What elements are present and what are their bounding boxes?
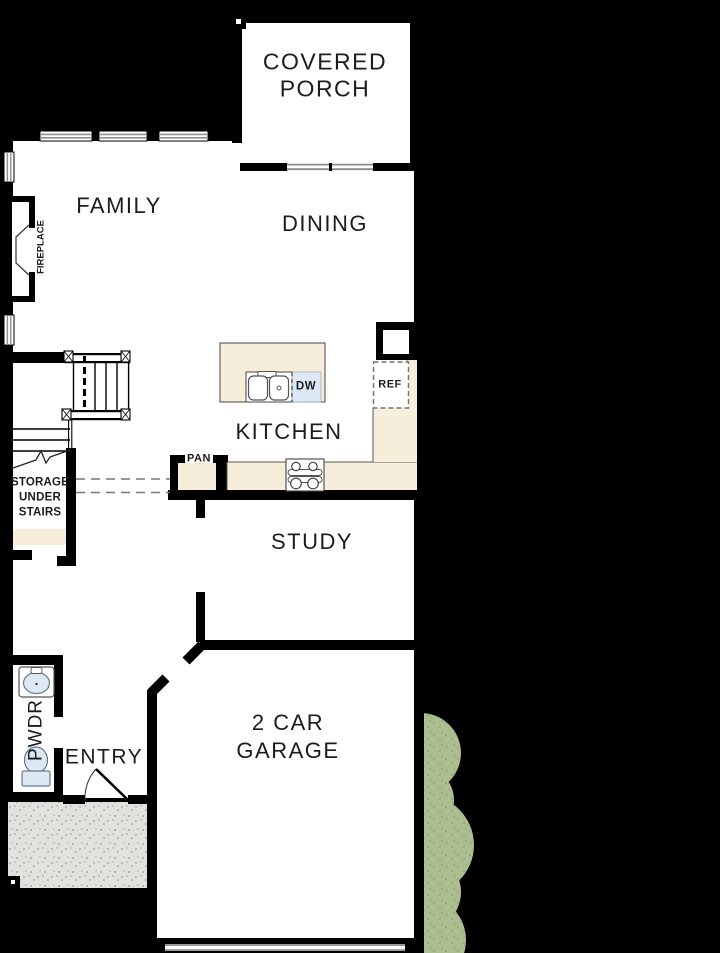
- label-dishwasher: DW: [296, 381, 316, 393]
- label-pantry: PAN: [187, 454, 211, 465]
- counter-right: [373, 408, 417, 462]
- floor-plan: COVERED PORCH FAMILY DINING KITCHEN STUD…: [0, 0, 720, 953]
- label-refrigerator: REF: [378, 380, 402, 391]
- garage-floor: [147, 648, 414, 940]
- pantry-interior: [178, 463, 216, 490]
- garage-door: [165, 944, 405, 951]
- label-study: STUDY: [271, 531, 353, 553]
- label-covered-porch-line2: PORCH: [280, 78, 371, 101]
- label-family: FAMILY: [76, 195, 162, 217]
- label-storage-line1: STORAGE: [11, 477, 69, 489]
- label-garage-line1: 2 CAR: [252, 712, 324, 734]
- label-entry: ENTRY: [65, 747, 143, 768]
- label-garage-line2: GARAGE: [236, 740, 339, 762]
- label-storage-line2: UNDER: [19, 492, 61, 504]
- range-cooktop: [286, 459, 324, 491]
- label-fireplace: FIREPLACE: [36, 220, 46, 274]
- label-pwdr: PWDR: [27, 699, 46, 761]
- family-windows: [40, 131, 208, 141]
- porch-sliding-door: [287, 163, 373, 171]
- island-sink: [246, 372, 292, 403]
- label-covered-porch-line1: COVERED: [263, 51, 387, 74]
- floor-plan-drawing: [0, 0, 720, 953]
- label-kitchen: KITCHEN: [235, 421, 342, 443]
- kitchen-niche: [383, 330, 409, 354]
- powder-sink: [19, 667, 54, 697]
- label-dining: DINING: [282, 213, 368, 235]
- front-porch-concrete: [8, 802, 148, 888]
- storage-shelf: [13, 529, 66, 545]
- fireplace-structure: [12, 196, 35, 302]
- label-storage-line3: STAIRS: [19, 507, 62, 519]
